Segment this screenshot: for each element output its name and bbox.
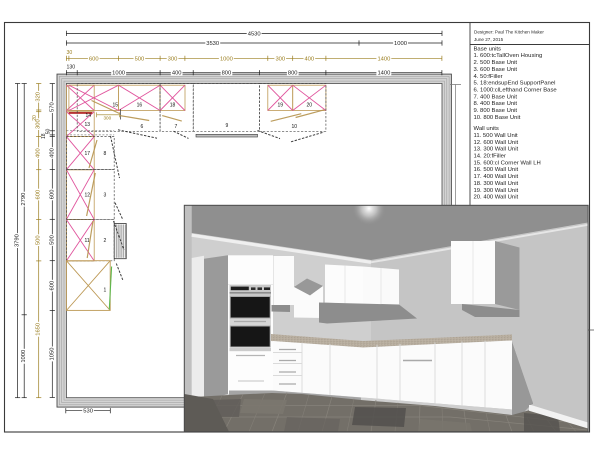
svg-text:15: 15	[113, 103, 119, 109]
svg-text:10: 10	[292, 124, 298, 130]
svg-text:300: 300	[104, 115, 112, 120]
svg-text:7. 400 Base Unit: 7. 400 Base Unit	[474, 94, 518, 100]
svg-text:19: 19	[278, 103, 284, 109]
svg-text:1: 1	[104, 288, 107, 294]
svg-text:18: 18	[41, 133, 47, 139]
svg-text:Wall units: Wall units	[474, 126, 499, 132]
svg-text:7: 7	[175, 124, 178, 130]
svg-text:13: 13	[85, 122, 91, 128]
svg-text:320: 320	[36, 92, 42, 102]
svg-text:9. 800 Base Unit: 9. 800 Base Unit	[474, 108, 518, 114]
svg-text:600: 600	[89, 56, 99, 62]
svg-text:4. 50:fFiller: 4. 50:fFiller	[474, 74, 503, 80]
svg-text:14. 20:fFiller: 14. 20:fFiller	[474, 154, 506, 160]
svg-text:400: 400	[304, 56, 314, 62]
svg-text:20: 20	[307, 103, 313, 109]
svg-text:12. 600 Wall Unit: 12. 600 Wall Unit	[474, 140, 519, 146]
svg-text:13. 300 Wall Unit: 13. 300 Wall Unit	[474, 147, 519, 153]
svg-text:3. 600 Base Unit: 3. 600 Base Unit	[474, 67, 518, 73]
svg-text:600: 600	[49, 190, 55, 200]
svg-text:1400: 1400	[377, 56, 390, 62]
svg-text:1000: 1000	[112, 71, 125, 77]
svg-text:2790: 2790	[21, 193, 27, 206]
svg-text:18: 18	[170, 103, 176, 109]
svg-text:500: 500	[135, 56, 145, 62]
svg-text:14: 14	[86, 113, 92, 119]
svg-text:Designer: Paul The Kitchen Mak: Designer: Paul The Kitchen Maker	[474, 30, 544, 35]
svg-text:500: 500	[49, 235, 55, 245]
svg-text:3530: 3530	[206, 41, 219, 47]
svg-text:June 27, 2015: June 27, 2015	[474, 37, 504, 42]
svg-text:800: 800	[222, 71, 232, 77]
svg-text:530: 530	[83, 409, 93, 415]
svg-text:300: 300	[275, 56, 285, 62]
svg-text:11. 500 Wall Unit: 11. 500 Wall Unit	[474, 133, 519, 139]
svg-text:800: 800	[288, 71, 298, 77]
svg-text:10. 800 Base Unit: 10. 800 Base Unit	[474, 115, 521, 121]
svg-text:3: 3	[104, 192, 107, 198]
svg-text:1000: 1000	[394, 41, 407, 47]
svg-text:300: 300	[168, 56, 178, 62]
svg-text:600: 600	[36, 190, 42, 200]
svg-text:50: 50	[46, 129, 52, 135]
svg-text:Base units: Base units	[474, 46, 502, 52]
svg-text:2: 2	[104, 238, 107, 244]
svg-text:500: 500	[36, 235, 42, 245]
svg-text:1000: 1000	[21, 350, 27, 363]
svg-text:1050: 1050	[49, 348, 55, 361]
svg-text:15. 600:cl Corner Wall LH: 15. 600:cl Corner Wall LH	[474, 160, 541, 166]
svg-text:18. 300 Wall Unit: 18. 300 Wall Unit	[474, 181, 519, 187]
svg-text:17. 400 Wall Unit: 17. 400 Wall Unit	[474, 174, 519, 180]
svg-text:400: 400	[36, 148, 42, 158]
svg-text:600: 600	[49, 281, 55, 291]
svg-text:8: 8	[104, 151, 107, 157]
svg-text:400: 400	[172, 71, 182, 77]
svg-text:20: 20	[32, 115, 38, 121]
svg-text:9: 9	[226, 123, 229, 129]
svg-text:20. 400 Wall Unit: 20. 400 Wall Unit	[474, 195, 519, 201]
svg-text:17: 17	[85, 151, 91, 157]
svg-text:3790: 3790	[15, 234, 21, 247]
svg-text:6. 1000:clLefthand Corner Base: 6. 1000:clLefthand Corner Base	[474, 88, 558, 94]
svg-text:16: 16	[137, 103, 143, 109]
svg-text:16. 500 Wall Unit: 16. 500 Wall Unit	[474, 167, 519, 173]
svg-text:400: 400	[49, 148, 55, 158]
svg-text:8. 400 Base Unit: 8. 400 Base Unit	[474, 101, 518, 107]
svg-text:19. 300 Wall Unit: 19. 300 Wall Unit	[474, 188, 519, 194]
svg-text:30: 30	[67, 50, 73, 56]
svg-text:4530: 4530	[248, 31, 261, 37]
svg-text:570: 570	[49, 102, 55, 112]
svg-text:2. 500 Base Unit: 2. 500 Base Unit	[474, 60, 518, 66]
svg-text:12: 12	[85, 193, 91, 199]
svg-text:1000: 1000	[220, 56, 233, 62]
svg-text:1. 600:tcTallOven Housing: 1. 600:tcTallOven Housing	[474, 53, 543, 59]
svg-text:1400: 1400	[377, 71, 390, 77]
svg-text:130: 130	[67, 65, 76, 71]
svg-text:1650: 1650	[36, 323, 42, 336]
svg-text:5. 18:endsupEnd SupportPanel: 5. 18:endsupEnd SupportPanel	[474, 81, 556, 87]
svg-text:6: 6	[141, 124, 144, 130]
